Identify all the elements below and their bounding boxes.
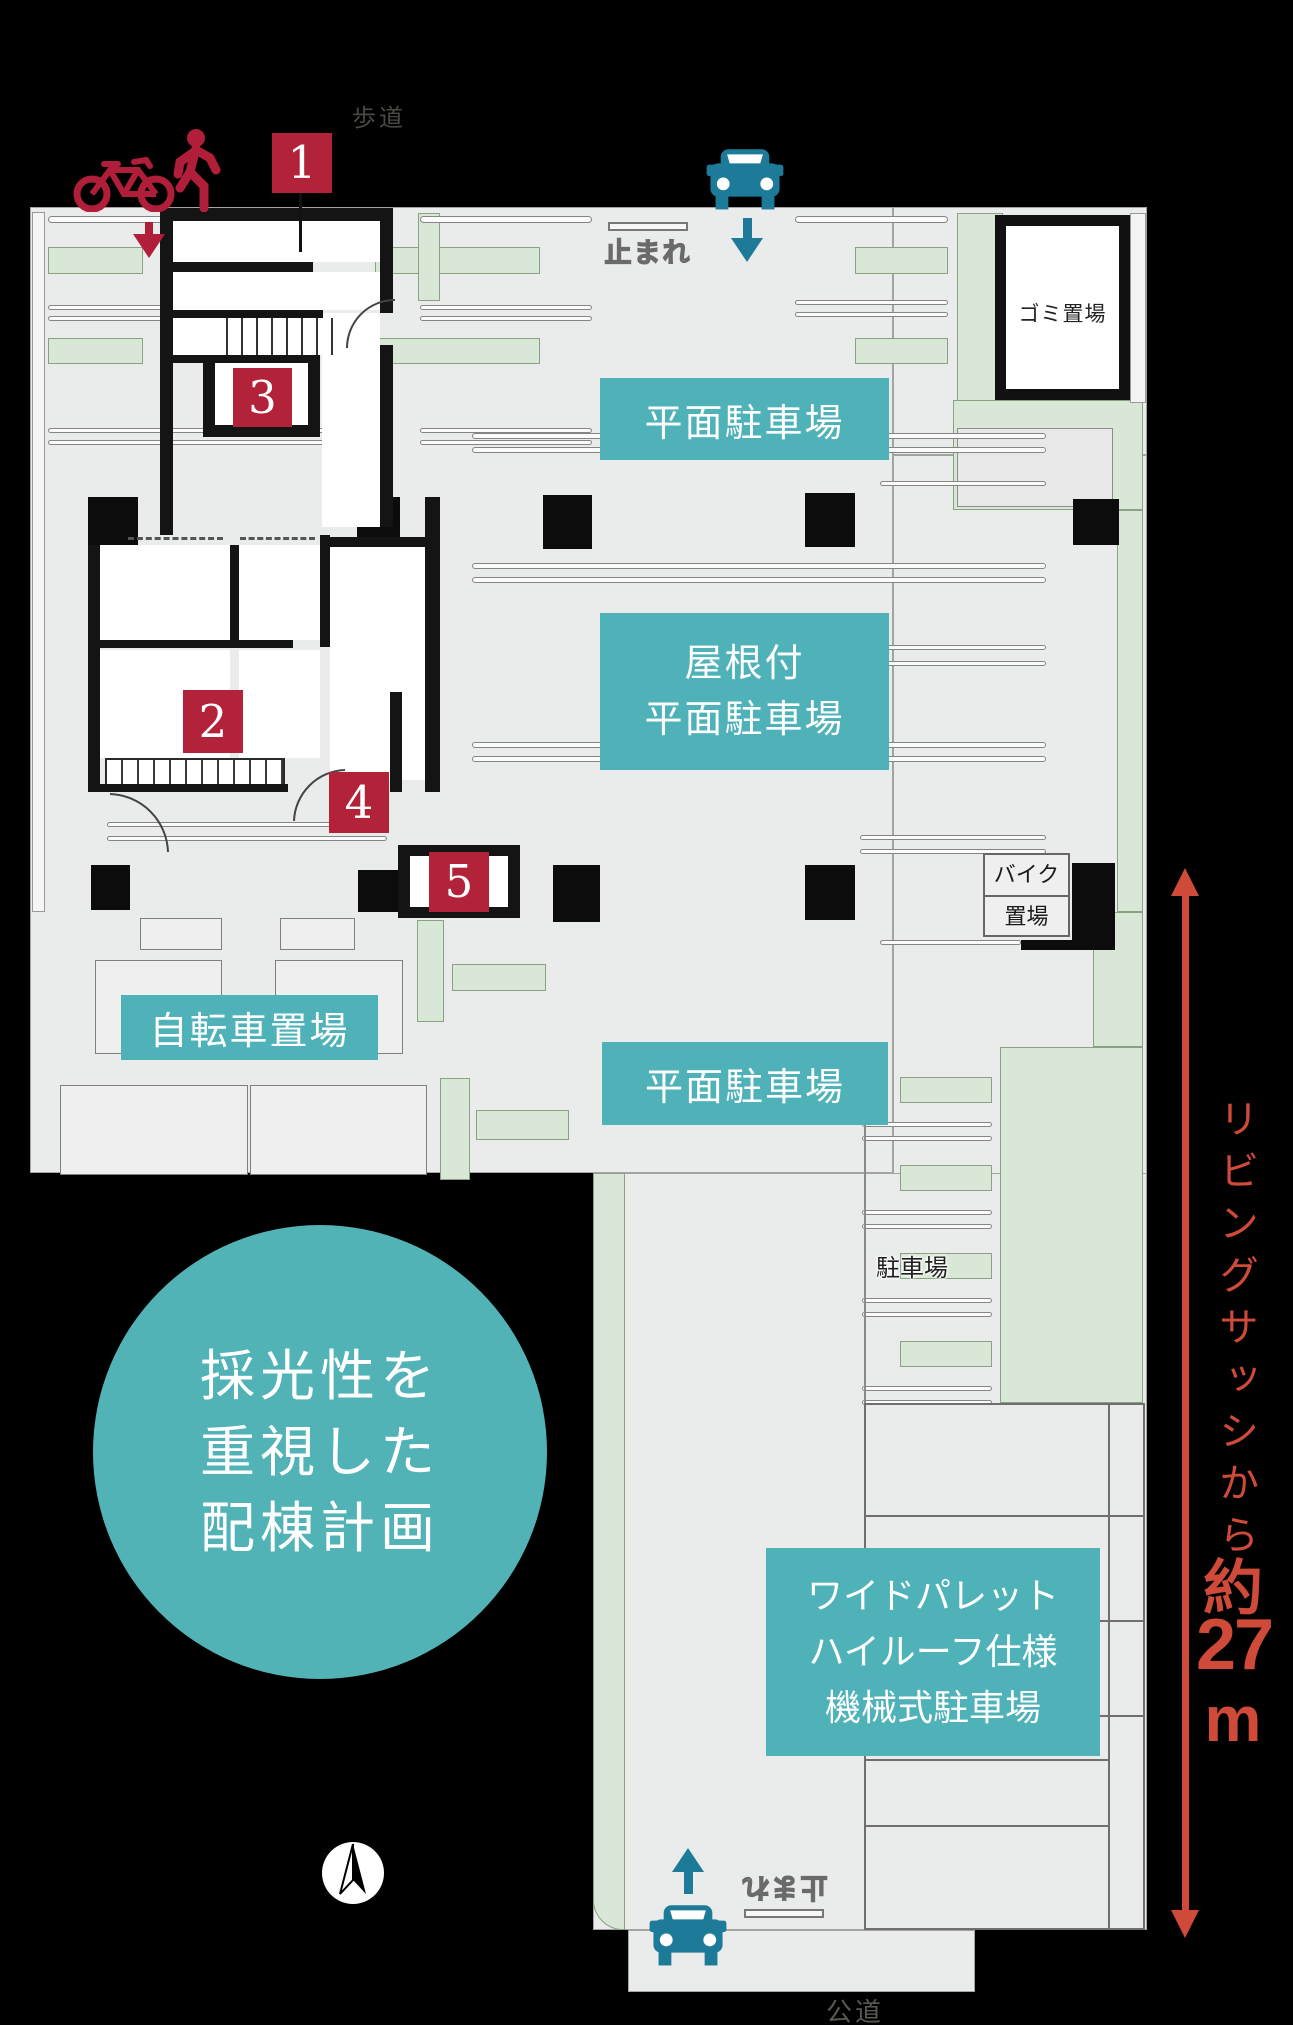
planting [417,920,444,1022]
planting [1000,1047,1143,1403]
stop-marking-bottom: 止まれ [736,1860,832,1918]
label-mechanical-parking: ワイドパレット ハイルーフ仕様 機械式駐車場 [766,1548,1100,1756]
label-bicycle-parking: 自転車置場 [121,995,378,1060]
pillar [805,865,855,920]
planting [418,213,440,301]
building-room [100,545,230,640]
planting [375,338,540,364]
building-room [239,545,320,640]
stall-marker [862,1210,992,1215]
wall-bar [1021,940,1093,950]
garbage-room: ゴミ置場 [995,215,1130,400]
badge-5: 5 [429,852,489,912]
building-room [330,545,425,780]
building-room [173,221,380,262]
bike-rack [280,918,355,950]
planting [900,1165,992,1191]
motorcycle-area-label-2: 置場 [985,897,1068,937]
sidewalk-label: 歩道 [352,98,406,133]
stall-marker [880,661,1046,666]
badge-4: 4 [329,772,389,833]
stall-marker [48,440,335,445]
building-wall [390,692,402,792]
pillar [553,865,600,922]
arrow-down-icon [743,218,752,240]
boundary-strip [1130,213,1146,403]
stall-marker [420,305,592,310]
planting [900,1341,992,1367]
measure-unit: m [1204,1682,1262,1756]
parking-pad [957,428,1113,507]
door-arc [108,792,170,854]
stall-marker [472,563,1046,569]
planting-driveway-strip [593,1173,625,1930]
building-wall [92,640,293,648]
stall-marker [862,1224,992,1229]
badge-1-stem [299,190,302,252]
planting [375,247,540,274]
building-room [239,650,320,758]
stall-marker [472,577,1046,583]
concept-line-3: 配棟計画 [200,1490,440,1566]
building-wall [320,535,330,647]
motorcycle-area-label-1: バイク [985,855,1068,897]
parking-small-label: 駐車場 [876,1248,948,1283]
stall-marker [420,216,592,223]
stall-marker [880,940,1021,945]
pillar [91,865,130,910]
window [240,537,315,540]
label-roofed-parking: 屋根付 平面駐車場 [600,613,889,770]
bike-rack [250,1085,427,1175]
pillar [805,493,855,547]
stall-marker [795,216,948,223]
badge-2: 2 [183,690,243,753]
concept-line-1: 採光性を [200,1338,440,1414]
building-wall [425,497,440,792]
stall-marker [862,1136,992,1141]
stall-marker [420,440,592,445]
car-icon [703,148,787,212]
motorcycle-area: バイク 置場 [983,853,1070,937]
building-wall [88,545,100,792]
wall-notch [1072,863,1115,950]
stall-marker [862,1386,992,1391]
planting [900,1077,992,1103]
bike-rack [140,918,222,950]
concept-circle: 採光性を 重視した 配棟計画 [93,1225,547,1679]
pedestrian-icon [170,128,222,212]
building-wall [380,345,393,527]
arrow-down-icon-head [133,234,165,258]
arrow-up-icon [684,1870,693,1894]
compass-icon [318,1838,388,1908]
building-wall [330,537,425,547]
planting [48,338,143,364]
car-icon [646,1904,730,1968]
arrow-down-icon-head [731,238,763,262]
stall-marker [795,312,948,317]
building-wall [173,355,320,363]
measure-arrow-line [1182,890,1189,1916]
stall-marker [860,835,1046,840]
badge-3: 3 [233,368,292,427]
stall-marker [862,1298,992,1303]
measure-label: リビングサッシから [1206,1098,1264,1578]
building-wall [173,310,323,318]
window [128,537,223,540]
building-wall [88,784,288,792]
stall-marker [795,300,948,305]
stairs [213,318,333,355]
bicycle-icon [72,150,176,212]
door-arc [345,298,397,350]
arrow-up-icon-head [672,1848,704,1872]
public-road-label: 公道 [826,1992,884,2025]
measure-value: 27 [1196,1604,1270,1686]
building-wall [173,262,313,272]
planting [440,1078,470,1180]
label-flat-parking-mid: 平面駐車場 [602,1042,888,1125]
badge-1: 1 [272,133,332,193]
stall-marker [862,1312,992,1317]
stop-marking-top: 止まれ [600,222,696,280]
stall-marker [420,316,592,321]
label-flat-parking-top: 平面駐車場 [600,378,889,460]
planting [48,247,143,274]
garbage-room-label: ゴミ置場 [1006,298,1119,328]
stall-marker [880,481,1046,486]
planting [452,964,546,991]
concept-line-2: 重視した [200,1414,440,1490]
boundary-strip [32,212,45,912]
measure-arrow-head-top [1171,868,1199,896]
bike-rack [60,1085,248,1175]
building-wall [230,545,239,640]
stall-marker [880,645,1046,650]
site-plan: ゴミ置場 バイク 置場 平面駐車場 屋根付 平面駐車場 自転車置場 平面駐車場 … [0,0,1293,2025]
planting [855,338,948,364]
planting [476,1110,569,1140]
planting [855,247,948,274]
measure-arrow-head-bottom [1171,1910,1199,1938]
planting [1117,510,1143,912]
pillar [543,495,592,549]
pillar [1073,499,1119,545]
